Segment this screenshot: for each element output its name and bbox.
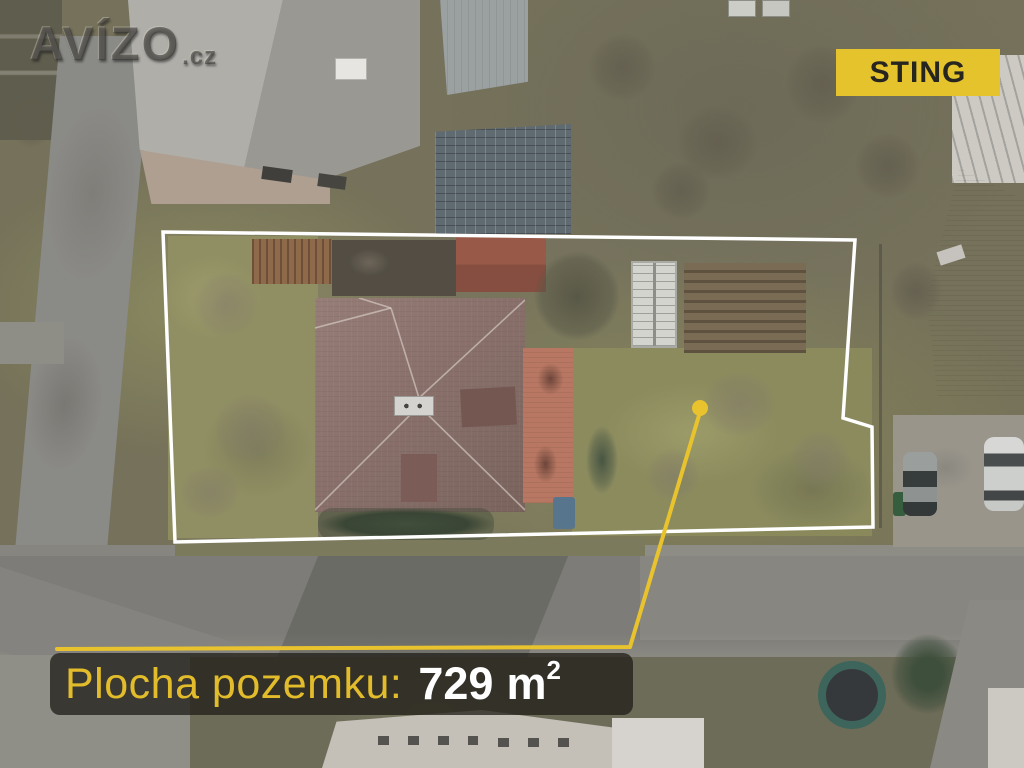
yard-clutter [332, 240, 456, 296]
tree [640, 150, 722, 232]
cold-frame [728, 0, 756, 17]
back-garden-shade [523, 240, 631, 352]
red-annex-roof [523, 348, 573, 503]
roof-vent [335, 58, 367, 80]
area-label: Plocha pozemku: 729 m2 [50, 653, 633, 715]
watermark-tld: .cz [182, 43, 217, 70]
tree [880, 250, 952, 332]
chimney [394, 396, 434, 416]
watermark-brand: AVÍZO [30, 17, 180, 70]
garden-beds [684, 263, 806, 353]
tree [0, 86, 62, 158]
greenhouse [631, 261, 677, 348]
aerial-photo: Plocha pozemku: 729 m2 AVÍZO.cz STING [0, 0, 1024, 768]
roof-dormer-south [401, 454, 437, 502]
area-unit: m2 [506, 658, 560, 710]
tree [842, 120, 934, 212]
street-wet-patch [277, 545, 572, 657]
tree [168, 455, 252, 529]
bottom-white-building [612, 718, 704, 768]
avizo-watermark: AVÍZO.cz [30, 16, 215, 71]
area-value: 729 [418, 658, 493, 710]
tree [778, 418, 862, 502]
pergola-panel-roof [435, 124, 571, 234]
trampoline [818, 661, 886, 729]
driveway-entry [0, 322, 64, 364]
sting-agency-badge: STING [836, 49, 1000, 96]
small-gray-roof [440, 0, 528, 95]
tree [180, 258, 272, 350]
sting-badge-label: STING [870, 56, 967, 90]
area-unit-exponent: 2 [546, 655, 560, 685]
area-label-caption: Plocha pozemku: [65, 660, 402, 709]
roof-dormer-east [460, 387, 517, 428]
gray-car [903, 452, 937, 516]
tree [688, 358, 790, 450]
bottom-roof-skylights-2 [498, 738, 578, 747]
bottomright-building [988, 688, 1024, 768]
white-car [984, 437, 1024, 511]
blue-tarp [553, 497, 575, 529]
garden-shrub [586, 426, 618, 494]
cold-frame-2 [762, 0, 790, 17]
hedge-row [318, 508, 494, 540]
tree [575, 20, 670, 115]
bottom-roof-skylights [378, 736, 478, 745]
tree [636, 438, 710, 512]
grass-verge [175, 538, 645, 556]
